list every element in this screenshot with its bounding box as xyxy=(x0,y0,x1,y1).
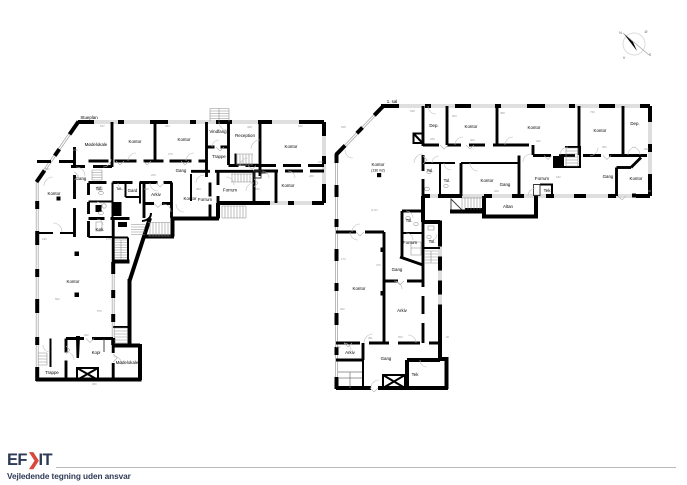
svg-text:464: 464 xyxy=(165,124,170,128)
svg-text:Kontor: Kontor xyxy=(129,139,142,144)
svg-text:Forrum: Forrum xyxy=(535,176,549,181)
svg-text:Forrum: Forrum xyxy=(403,240,417,245)
svg-text:262: 262 xyxy=(340,307,345,311)
svg-text:Kontor: Kontor xyxy=(481,178,494,183)
svg-text:Altan: Altan xyxy=(503,204,514,209)
svg-text:Kontor: Kontor xyxy=(372,162,385,167)
svg-text:Kontor: Kontor xyxy=(184,196,197,201)
svg-text:EF: EF xyxy=(7,451,27,469)
svg-text:N: N xyxy=(619,31,622,35)
svg-text:542: 542 xyxy=(298,124,303,128)
svg-text:173: 173 xyxy=(341,257,346,261)
svg-text:236: 236 xyxy=(73,148,78,152)
svg-text:Gang: Gang xyxy=(76,176,87,181)
svg-text:Kontor: Kontor xyxy=(67,279,80,284)
svg-text:96: 96 xyxy=(648,189,652,193)
svg-text:(172): (172) xyxy=(371,208,378,212)
svg-text:241: 241 xyxy=(336,345,341,349)
svg-text:262: 262 xyxy=(644,147,649,151)
svg-text:370: 370 xyxy=(318,160,323,164)
svg-text:Mødelokale: Mødelokale xyxy=(85,142,108,147)
svg-text:Kontor: Kontor xyxy=(48,191,61,196)
svg-text:173: 173 xyxy=(106,237,111,241)
svg-text:Tol.: Tol. xyxy=(96,207,103,212)
svg-text:262: 262 xyxy=(84,333,89,337)
svg-text:Arkiv: Arkiv xyxy=(151,192,162,197)
svg-text:(136 m2): (136 m2) xyxy=(371,169,385,173)
svg-text:Gang: Gang xyxy=(603,174,614,179)
svg-text:Tol.: Tol. xyxy=(429,239,436,244)
svg-text:370: 370 xyxy=(168,152,173,156)
svg-text:230: 230 xyxy=(42,237,47,241)
svg-text:Arkiv: Arkiv xyxy=(397,308,408,313)
svg-text:229: 229 xyxy=(151,173,156,177)
svg-text:Kontor: Kontor xyxy=(630,176,643,181)
svg-text:548: 548 xyxy=(410,109,415,113)
svg-text:Dep.: Dep. xyxy=(630,121,639,126)
svg-text:S: S xyxy=(649,53,652,57)
svg-text:575: 575 xyxy=(97,309,102,313)
svg-text:353: 353 xyxy=(398,335,403,339)
svg-text:Tol.: Tol. xyxy=(427,168,434,173)
svg-text:Tek: Tek xyxy=(412,372,420,377)
svg-text:Mødelokale: Mødelokale xyxy=(116,360,139,365)
svg-text:220: 220 xyxy=(309,174,314,178)
svg-text:92: 92 xyxy=(446,335,450,339)
svg-text:Stueplan: Stueplan xyxy=(80,115,98,120)
svg-text:Kontor: Kontor xyxy=(282,183,295,188)
svg-text:283: 283 xyxy=(196,187,201,191)
svg-text:Gang: Gang xyxy=(176,168,187,173)
svg-text:Køk.: Køk. xyxy=(258,170,267,175)
svg-text:Gang: Gang xyxy=(500,182,511,187)
svg-text:193: 193 xyxy=(255,187,260,191)
svg-text:730: 730 xyxy=(590,110,595,114)
svg-text:Kontor: Kontor xyxy=(353,286,366,291)
svg-text:Reception: Reception xyxy=(235,133,255,138)
svg-text:594: 594 xyxy=(45,167,50,171)
svg-text:537: 537 xyxy=(100,124,105,128)
svg-text:Tol.: Tol. xyxy=(444,178,451,183)
svg-text:Trappe: Trappe xyxy=(212,154,226,159)
svg-text:182: 182 xyxy=(556,175,561,179)
svg-text:420: 420 xyxy=(494,189,499,193)
svg-text:IT: IT xyxy=(39,451,53,469)
svg-text:Gang: Gang xyxy=(392,267,403,272)
svg-text:391: 391 xyxy=(368,336,373,340)
svg-text:Vindfang: Vindfang xyxy=(209,129,227,134)
svg-text:Forrum: Forrum xyxy=(198,197,212,202)
svg-text:Gard: Gard xyxy=(128,188,138,193)
svg-text:Ø: Ø xyxy=(645,30,648,34)
svg-text:Kontor: Kontor xyxy=(178,137,191,142)
svg-text:Tol.: Tol. xyxy=(116,187,122,191)
svg-text:592: 592 xyxy=(55,297,60,301)
svg-text:Tol.: Tol. xyxy=(96,186,103,191)
svg-text:V: V xyxy=(623,56,626,60)
svg-text:Arkiv: Arkiv xyxy=(345,350,356,355)
svg-text:1. sal: 1. sal xyxy=(387,99,398,104)
svg-text:Køk.: Køk. xyxy=(95,227,104,232)
svg-text:353: 353 xyxy=(602,145,607,149)
svg-text:Kopi: Kopi xyxy=(92,350,101,355)
svg-text:Kontor: Kontor xyxy=(594,128,607,133)
svg-text:Tol.: Tol. xyxy=(406,218,413,223)
svg-text:Gang: Gang xyxy=(381,356,392,361)
svg-text:262: 262 xyxy=(144,187,149,191)
svg-text:Tek: Tek xyxy=(544,188,552,193)
svg-text:403: 403 xyxy=(470,138,475,142)
svg-text:420: 420 xyxy=(536,139,541,143)
svg-text:Kontor: Kontor xyxy=(285,144,298,149)
svg-text:Dep.: Dep. xyxy=(429,123,438,128)
svg-text:548: 548 xyxy=(341,125,346,129)
svg-text:300: 300 xyxy=(92,382,97,386)
svg-text:Kontor: Kontor xyxy=(528,125,541,130)
svg-text:Kontor: Kontor xyxy=(465,124,478,129)
svg-text:Trappe: Trappe xyxy=(45,370,59,375)
svg-text:448: 448 xyxy=(247,125,252,129)
svg-text:229: 229 xyxy=(430,137,435,141)
svg-text:Forrum: Forrum xyxy=(223,188,237,193)
svg-text:263: 263 xyxy=(452,114,457,118)
svg-text:370: 370 xyxy=(376,263,381,267)
svg-text:458: 458 xyxy=(500,111,505,115)
svg-text:Vejledende tegning uden ansvar: Vejledende tegning uden ansvar xyxy=(7,471,132,481)
